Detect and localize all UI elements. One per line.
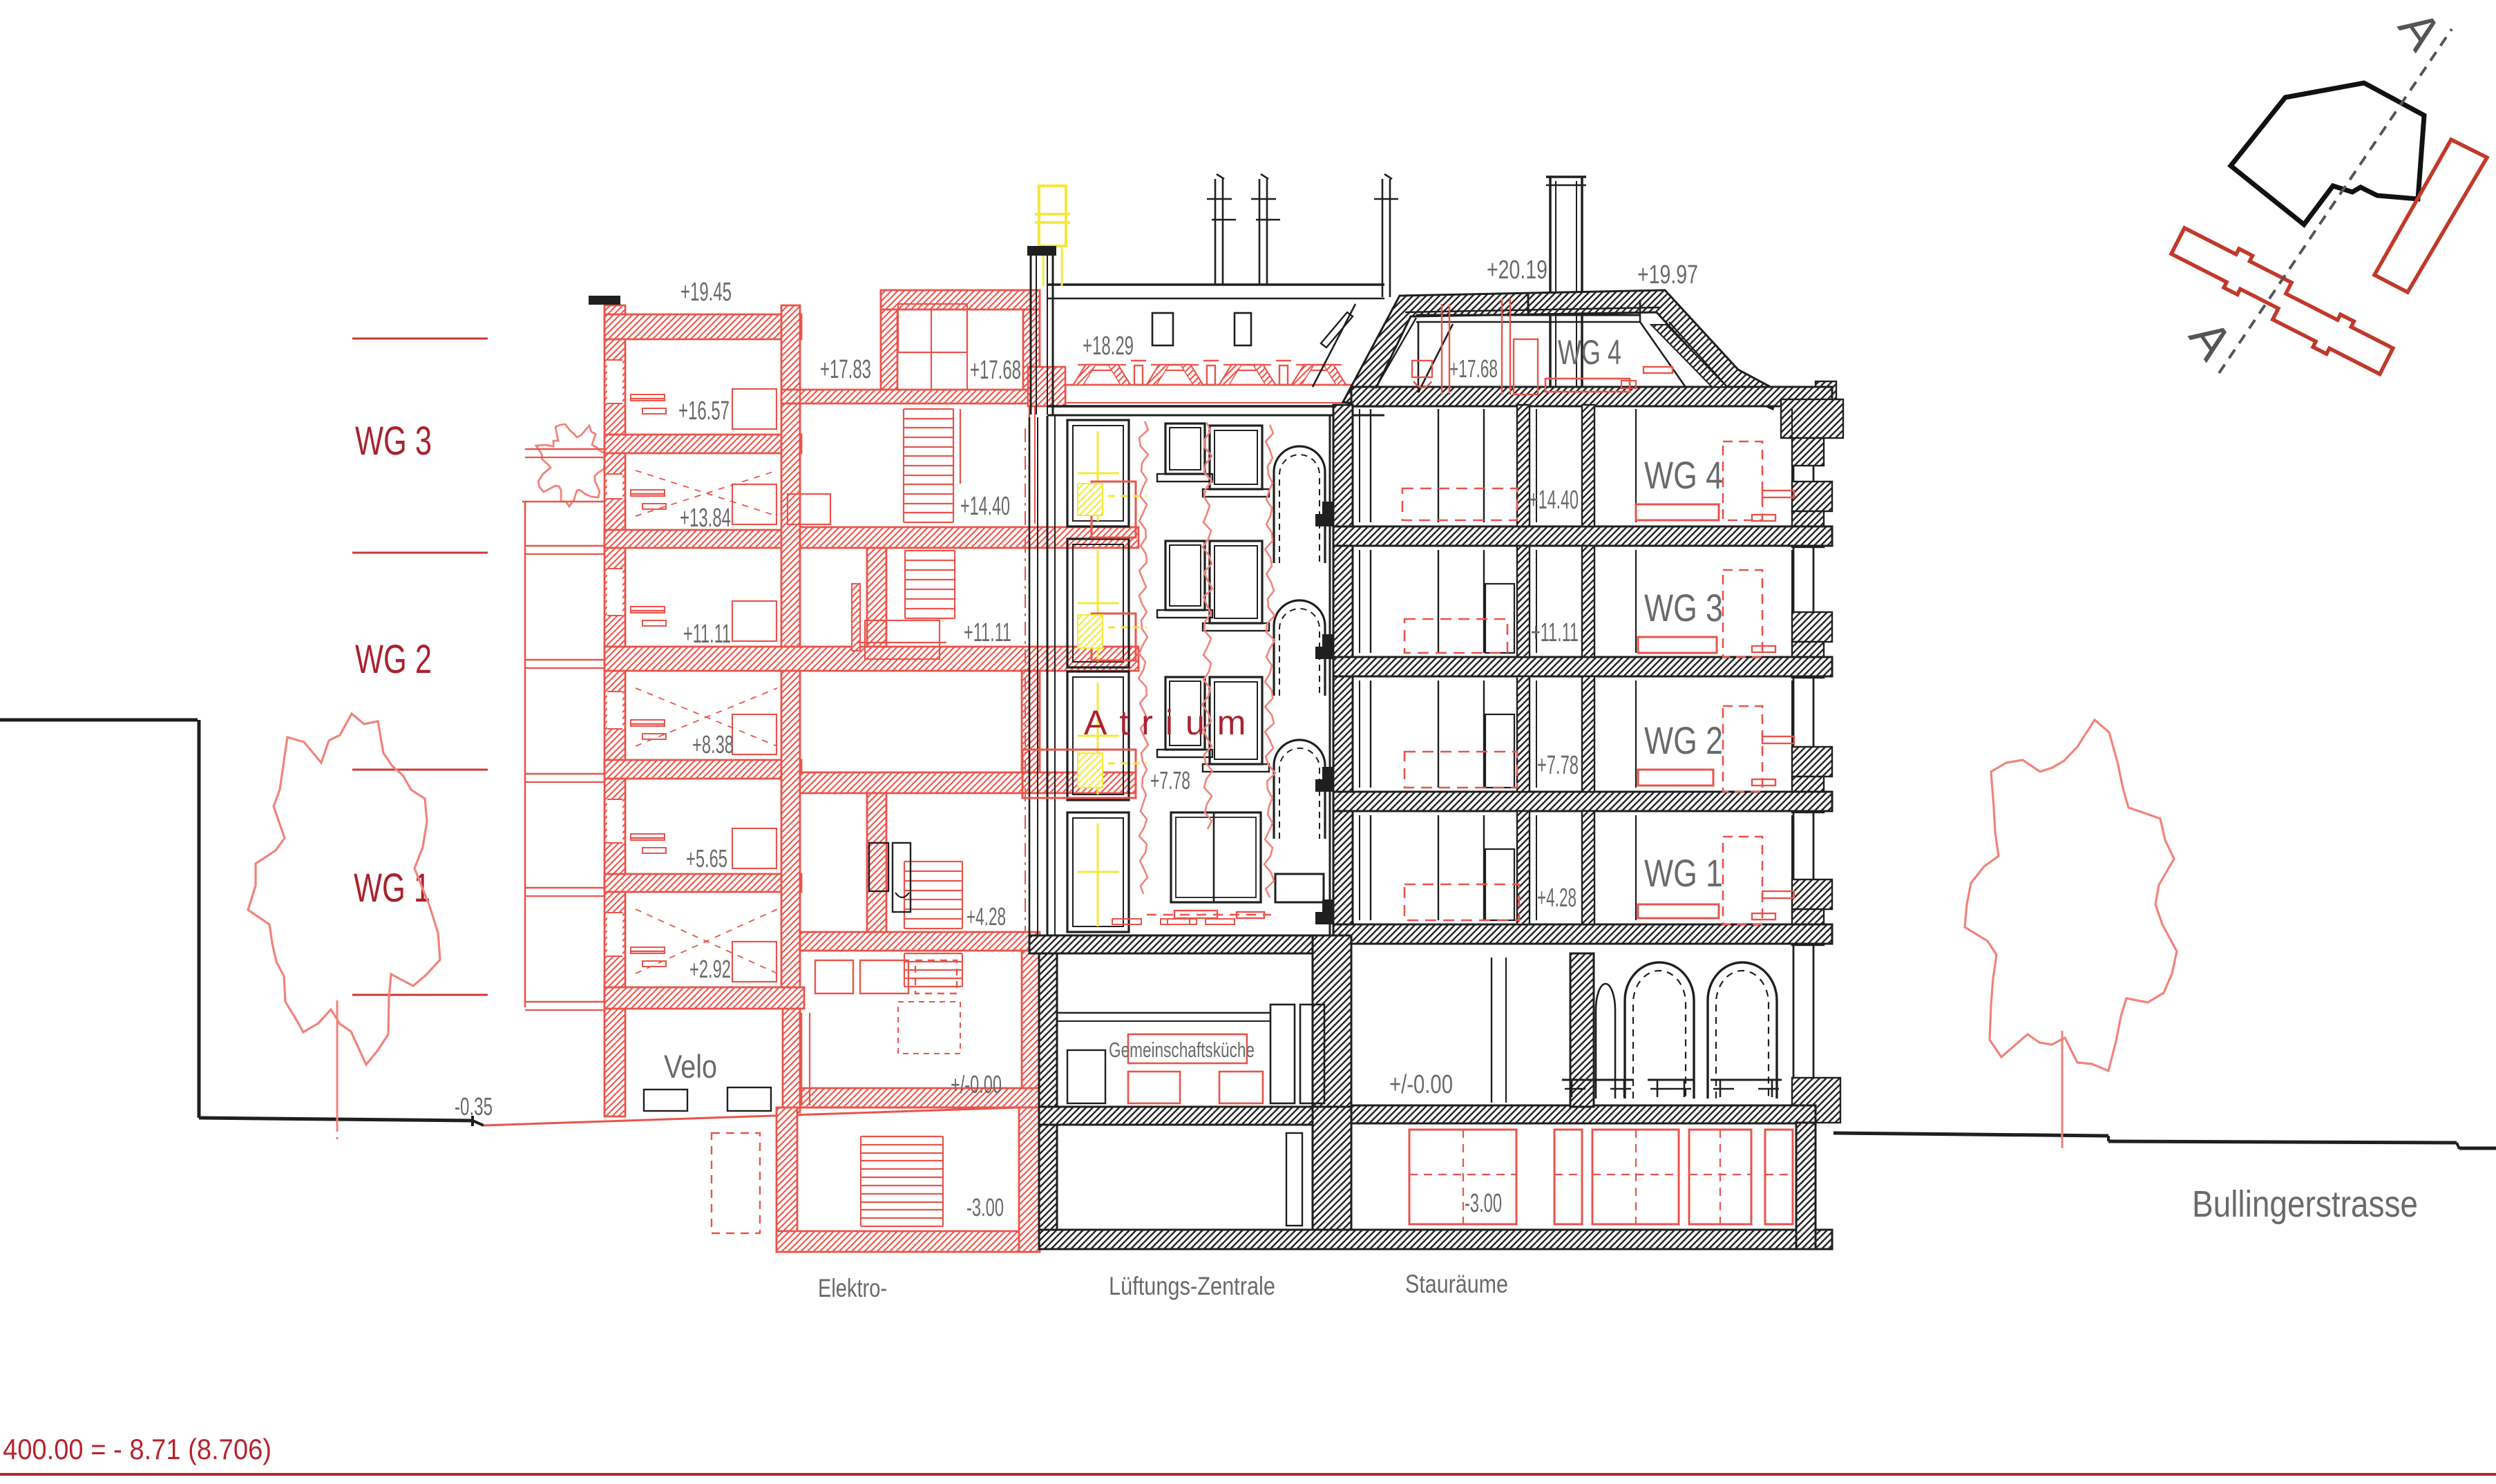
svg-text:+4.28: +4.28	[1537, 884, 1576, 913]
svg-text:+14.40: +14.40	[960, 492, 1010, 521]
svg-text:+2.92: +2.92	[689, 955, 731, 983]
svg-text:Elektro-: Elektro-	[818, 1274, 887, 1302]
svg-text:+11.11: +11.11	[1531, 618, 1579, 647]
svg-text:WG 1: WG 1	[354, 866, 430, 911]
svg-text:-3.00: -3.00	[966, 1193, 1004, 1221]
svg-text:WG 3: WG 3	[355, 419, 432, 464]
svg-text:+19.45: +19.45	[680, 278, 732, 307]
svg-text:+20.19: +20.19	[1487, 256, 1547, 285]
svg-text:WG 2: WG 2	[355, 637, 432, 682]
svg-text:+5.65: +5.65	[686, 844, 727, 873]
svg-text:+18.29: +18.29	[1083, 332, 1134, 361]
svg-text:+11.11: +11.11	[964, 618, 1011, 647]
svg-text:-0.35: -0.35	[455, 1092, 493, 1121]
svg-text:+19.97: +19.97	[1637, 260, 1698, 289]
svg-text:WG 4: WG 4	[1558, 333, 1621, 372]
svg-text:+/-0.00: +/-0.00	[1389, 1070, 1453, 1099]
svg-text:Lüftungs-Zentrale: Lüftungs-Zentrale	[1109, 1272, 1275, 1300]
svg-text:WG 4: WG 4	[1644, 453, 1723, 497]
svg-text:+7.78: +7.78	[1537, 751, 1579, 780]
svg-text:+4.28: +4.28	[966, 902, 1006, 931]
svg-text:Velo: Velo	[664, 1048, 717, 1085]
svg-text:Gemeinschaftsküche: Gemeinschaftsküche	[1109, 1038, 1255, 1062]
svg-text:Stauräume: Stauräume	[1405, 1270, 1508, 1298]
svg-text:WG 3: WG 3	[1644, 586, 1723, 629]
svg-text:+11.11: +11.11	[683, 620, 731, 649]
svg-text:WG 1: WG 1	[1644, 851, 1723, 895]
svg-text:Bullingerstrasse: Bullingerstrasse	[2192, 1183, 2418, 1225]
svg-text:+16.57: +16.57	[678, 397, 730, 426]
svg-text:+17.83: +17.83	[820, 355, 871, 384]
svg-text:-3.00: -3.00	[1465, 1189, 1502, 1218]
svg-text:400.00 = - 8.71 (8.706): 400.00 = - 8.71 (8.706)	[3, 1433, 271, 1465]
svg-text:WG 2: WG 2	[1644, 719, 1723, 762]
svg-text:+17.68: +17.68	[1449, 354, 1498, 383]
svg-text:+7.78: +7.78	[1150, 766, 1190, 795]
svg-text:+17.68: +17.68	[970, 356, 1021, 385]
svg-text:Atrium: Atrium	[1084, 703, 1258, 742]
svg-text:+/-0.00: +/-0.00	[951, 1070, 1002, 1098]
svg-text:+13.84: +13.84	[680, 504, 731, 533]
svg-text:+8.38: +8.38	[692, 730, 734, 759]
svg-text:+14.40: +14.40	[1529, 486, 1579, 515]
